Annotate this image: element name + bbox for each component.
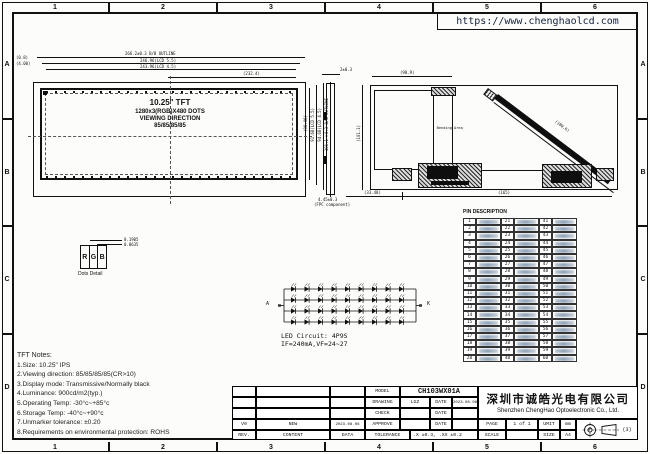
pin-name-smudge <box>552 340 577 347</box>
zone-label: A <box>638 12 648 120</box>
pin-number: 56 <box>539 326 552 333</box>
center-line-vertical <box>170 76 171 204</box>
zone-label: 3 <box>218 2 326 12</box>
pin-number: 4 <box>463 240 476 247</box>
pin-name-smudge <box>476 261 501 268</box>
connector-bar-left <box>431 181 469 185</box>
pin-number: 60 <box>539 355 552 362</box>
pin-name-smudge <box>552 283 577 290</box>
pin-name-smudge <box>476 355 501 362</box>
pin-name-smudge <box>514 333 539 340</box>
pin-name-smudge <box>552 333 577 340</box>
note-line: 1.Size: 10.25" IPS <box>17 361 235 371</box>
pin-number: 30 <box>501 283 514 290</box>
data-label-cell: DATA <box>330 430 365 440</box>
empty-cell <box>232 408 256 419</box>
dim-line <box>362 85 363 190</box>
pin-number: 46 <box>539 254 552 261</box>
tft-notes: TFT Notes: 1.Size: 10.25" IPS2.Viewing d… <box>17 351 235 437</box>
dim-line <box>46 69 296 70</box>
pin-name-smudge <box>476 225 501 232</box>
dim-line <box>372 76 452 77</box>
alignment-mark <box>43 91 47 95</box>
side-view-outline <box>326 83 335 195</box>
approve-date-label-cell: DATE <box>430 419 452 430</box>
pin-number: 29 <box>501 276 514 283</box>
pin-number: 55 <box>539 319 552 326</box>
dim-right3-label: 94.68(LCD 4.5) <box>318 108 322 142</box>
pin-name-smudge <box>476 283 501 290</box>
note-line: 7.Unmarker tolerance: ±0.20 <box>17 418 235 428</box>
scale-value-cell <box>506 430 538 440</box>
pin-number: 59 <box>539 347 552 354</box>
pin-name-smudge <box>552 297 577 304</box>
zone-label: 5 <box>434 2 542 12</box>
zone-strip-bottom: 123456 <box>2 442 648 452</box>
pin-number: 52 <box>539 297 552 304</box>
pin-number: 21 <box>501 218 514 225</box>
url-box: https://www.chenghaolcd.com <box>437 12 638 30</box>
pin-name-smudge <box>552 247 577 254</box>
pin-name-smudge <box>552 304 577 311</box>
pin-name-smudge <box>552 347 577 354</box>
pin-number: 54 <box>539 311 552 318</box>
empty-cell <box>256 386 330 397</box>
empty-cell <box>330 397 365 408</box>
pin-name-smudge <box>514 268 539 275</box>
led-caption-2: IF=240mA,VF=24~27 <box>281 340 348 348</box>
pin-name-smudge <box>476 319 501 326</box>
zone-label: 1 <box>2 2 110 12</box>
pin-number: 5 <box>463 247 476 254</box>
pin-number: 31 <box>501 290 514 297</box>
pin-name-smudge <box>476 254 501 261</box>
pin-name-smudge <box>552 326 577 333</box>
note-line: 6.Storage Temp: -40°c~+90°c <box>17 409 235 419</box>
pin-number: 58 <box>539 340 552 347</box>
pin-number: 8 <box>463 268 476 275</box>
pin-number: 34 <box>501 311 514 318</box>
zone-label: 6 <box>542 2 648 12</box>
pin-name-smudge <box>514 232 539 239</box>
rev-date-cell: 2023.08.06 <box>330 419 365 430</box>
zone-label: A <box>2 12 12 120</box>
dim-right2-label: 91.68(LCD 5.5) <box>311 108 315 142</box>
note-line: 2.Viewing direction: 85/85/85/85(CR>10) <box>17 370 235 380</box>
pin-name-smudge <box>514 283 539 290</box>
zone-label: 5 <box>434 442 542 452</box>
pin-name-smudge <box>514 254 539 261</box>
bending-area-label: Bending Area <box>437 126 463 130</box>
connector-black-right <box>551 171 582 183</box>
pin-number: 10 <box>463 283 476 290</box>
third-angle-projection-icon <box>582 422 620 438</box>
pin-number: 2 <box>463 225 476 232</box>
pin-number: 39 <box>501 347 514 354</box>
pin-name-smudge <box>552 319 577 326</box>
pin-number: 16 <box>463 326 476 333</box>
connector-black-left <box>427 166 458 179</box>
empty-cell <box>256 397 330 408</box>
pin-name-smudge <box>514 319 539 326</box>
zone-strip-top: 123456 <box>2 2 648 12</box>
dim-tick <box>402 192 403 200</box>
zone-label: B <box>2 120 12 228</box>
empty-cell <box>232 397 256 408</box>
pin-name-smudge <box>552 232 577 239</box>
dim-line <box>346 196 612 197</box>
pin-number: 14 <box>463 311 476 318</box>
drawing-date-value-cell: 2023.08.06 <box>452 397 478 408</box>
size-value-cell: A4 <box>560 430 576 440</box>
pin-number: 17 <box>463 333 476 340</box>
pin-name-smudge <box>552 240 577 247</box>
pin-number: 45 <box>539 247 552 254</box>
fpc-bond-block <box>431 87 456 96</box>
dot-dim2-label: 0.0635 <box>124 243 138 247</box>
drawing-date-label-cell: DATE <box>430 397 452 408</box>
pin-name-smudge <box>552 261 577 268</box>
pin-number: 48 <box>539 268 552 275</box>
pin-number: 36 <box>501 326 514 333</box>
pin-number: 37 <box>501 333 514 340</box>
back-left-dim-label: (101.1) <box>357 125 361 142</box>
pin-number: 9 <box>463 276 476 283</box>
back-top-dim-label: (98.9) <box>400 71 414 75</box>
pin-number: 18 <box>463 340 476 347</box>
side-fpc-note-label: (FPC component) <box>314 203 350 207</box>
pin-name-smudge <box>514 304 539 311</box>
tolerance-label-cell: TOLERANCE <box>365 430 410 440</box>
check-date-label-cell: DATE <box>430 408 452 419</box>
model-value-cell: CH103WX01A <box>400 386 478 397</box>
projection-cell: (3) <box>576 419 638 440</box>
note-line: 3.Display mode: Transmissive/Normally bl… <box>17 380 235 390</box>
drawing-sheet: 123456 123456 ABCD ABCD https://www.chen… <box>0 0 650 454</box>
dim-left2-label: (4.00) <box>16 62 30 66</box>
pin-name-smudge <box>514 355 539 362</box>
zone-label: 6 <box>542 442 648 452</box>
pin-number: 7 <box>463 261 476 268</box>
scale-label-cell: SCALE <box>478 430 506 440</box>
pin-name-smudge <box>476 311 501 318</box>
pin-number: 6 <box>463 254 476 261</box>
dot-callout-line <box>90 240 122 241</box>
pin-number: 20 <box>463 355 476 362</box>
empty-cell <box>330 408 365 419</box>
side-view-tab <box>324 156 327 164</box>
zone-label: 2 <box>110 2 218 12</box>
pin-name-smudge <box>552 311 577 318</box>
side-view-tab <box>324 112 327 120</box>
dim-lcd55-label: 246.96(LCD 5.5) <box>140 59 176 63</box>
note-line: 5.Operating Temp: -30°c~+85°c <box>17 399 235 409</box>
pin-name-smudge <box>514 347 539 354</box>
pin-name-smudge <box>514 326 539 333</box>
bend-strip-line <box>452 90 453 170</box>
unit-label-cell: UMIT <box>538 419 560 430</box>
pin-name-smudge <box>552 276 577 283</box>
company-cell: 深圳市诚皓光电有限公司 Shenzhen ChengHao Optoelectr… <box>478 386 638 419</box>
dim-232-label: (232.4) <box>243 72 260 76</box>
pin-name-smudge <box>552 290 577 297</box>
approve-date-value-cell <box>452 419 478 430</box>
pin-name-smudge <box>476 347 501 354</box>
dot-detail-caption: Dots Detail <box>78 272 102 277</box>
pin-number: 22 <box>501 225 514 232</box>
note-line: 4.Luminance: 900cd/m2(typ.) <box>17 389 235 399</box>
company-name-en: Shenzhen ChengHao Optoelectronic Co., Lt… <box>497 408 619 414</box>
page-label-cell: PAGE <box>478 419 506 430</box>
check-label-cell: CHECK <box>365 408 400 419</box>
content-value-cell: NEW <box>256 419 330 430</box>
pin-number: 13 <box>463 304 476 311</box>
pin-name-smudge <box>476 333 501 340</box>
pin-name-smudge <box>476 326 501 333</box>
pin-name-smudge <box>514 218 539 225</box>
pin-number: 33 <box>501 304 514 311</box>
pin-number: 50 <box>539 283 552 290</box>
company-name-cn: 深圳市诚皓光电有限公司 <box>487 391 630 407</box>
pin-name-smudge <box>552 355 577 362</box>
drawing-label-cell: DRAWING <box>365 397 400 408</box>
pin-number: 24 <box>501 240 514 247</box>
led-array-svg <box>278 282 422 330</box>
pin-number: 44 <box>539 240 552 247</box>
notes-title: TFT Notes: <box>17 351 235 361</box>
empty-cell <box>256 408 330 419</box>
unit-value-cell: mm <box>560 419 576 430</box>
pin-number: 25 <box>501 247 514 254</box>
pin-name-smudge <box>476 240 501 247</box>
pin-name-smudge <box>552 225 577 232</box>
pin-name-smudge <box>476 276 501 283</box>
projection-label: (3) <box>622 427 631 433</box>
pin-number: 35 <box>501 319 514 326</box>
pin-name-smudge <box>552 268 577 275</box>
led-dot-marks-top <box>46 91 292 93</box>
back-dim-b2-label: (165) <box>498 191 510 195</box>
pin-name-smudge <box>476 340 501 347</box>
zone-label: 1 <box>2 442 110 452</box>
pin-number: 51 <box>539 290 552 297</box>
tolerance-value-cell: .X ±0.3, .XX ±0.2 <box>410 430 478 440</box>
back-dim-b1-label: (33.48) <box>364 191 381 195</box>
connector-tab <box>596 168 614 181</box>
pin-name-smudge <box>476 218 501 225</box>
dim-right1-label: (90.96) <box>304 115 308 132</box>
zone-label: 4 <box>326 2 434 12</box>
pin-number: 41 <box>539 218 552 225</box>
pin-name-smudge <box>552 218 577 225</box>
pin-number: 47 <box>539 261 552 268</box>
pin-table: 1214122242323434244452545626467274782848… <box>463 218 577 362</box>
dim-outline-label: 266.2±0.3 B/B OUTLINE <box>125 52 176 56</box>
pin-name-smudge <box>476 268 501 275</box>
notes-lines: 1.Size: 10.25" IPS2.Viewing direction: 8… <box>17 361 235 438</box>
zone-label: C <box>638 227 648 335</box>
revision-empty-rows <box>232 386 365 419</box>
side-thickness-label: 2±0.3 <box>340 68 352 72</box>
pin-name-smudge <box>514 290 539 297</box>
zone-label: B <box>638 120 648 228</box>
pin-name-smudge <box>552 254 577 261</box>
pin-name-smudge <box>514 297 539 304</box>
dot-b: B <box>98 246 106 268</box>
pin-number: 11 <box>463 290 476 297</box>
panel-spec-text: 10.25" TFT 1280x3(RGB)X480 DOTS VIEWING … <box>95 98 245 129</box>
zone-label: 2 <box>110 442 218 452</box>
pin-name-smudge <box>476 304 501 311</box>
pin-number: 12 <box>463 297 476 304</box>
pin-number: 28 <box>501 268 514 275</box>
website-link[interactable]: https://www.chenghaolcd.com <box>456 16 619 27</box>
dot-r: R <box>81 246 90 268</box>
dot-callout-line <box>97 244 122 245</box>
content-label-cell: CONTENT <box>256 430 330 440</box>
pin-name-smudge <box>514 311 539 318</box>
zone-label: 3 <box>218 442 326 452</box>
pin-number: 27 <box>501 261 514 268</box>
pin-number: 49 <box>539 276 552 283</box>
zone-strip-right: ABCD <box>638 12 648 440</box>
pin-number: 38 <box>501 340 514 347</box>
pin-name-smudge <box>514 340 539 347</box>
empty-cell <box>330 386 365 397</box>
pin-number: 3 <box>463 232 476 239</box>
note-line: 8.Requirements on environmental protecti… <box>17 428 235 438</box>
page-value-cell: 1 of 1 <box>506 419 538 430</box>
zone-strip-left: ABCD <box>2 12 12 440</box>
pin-number: 32 <box>501 297 514 304</box>
pin-table-title: PIN DESCRIPTION <box>463 210 507 215</box>
led-anode-label: A <box>266 302 269 307</box>
pin-number: 42 <box>539 225 552 232</box>
approve-label-cell: APPROVE <box>365 419 400 430</box>
pin-number: 15 <box>463 319 476 326</box>
zone-label: D <box>2 335 12 441</box>
pin-name-smudge <box>514 240 539 247</box>
panel-size-text: 10.25" TFT <box>95 98 245 107</box>
pin-number: 19 <box>463 347 476 354</box>
center-line-horizontal <box>28 136 312 137</box>
drawing-value-cell: LGZ <box>400 397 430 408</box>
zone-label: D <box>638 335 648 441</box>
led-cathode-label: K <box>427 302 430 307</box>
pin-name-smudge <box>514 276 539 283</box>
pin-name-smudge <box>476 232 501 239</box>
empty-cell <box>232 386 256 397</box>
panel-viewing-text: VIEWING DIRECTION <box>95 116 245 122</box>
zone-label: C <box>2 227 12 335</box>
dim-left1-label: (0.8) <box>16 56 28 60</box>
approve-value-cell <box>400 419 430 430</box>
back-pcb-area <box>374 90 434 170</box>
pin-number: 53 <box>539 304 552 311</box>
pin-number: 1 <box>463 218 476 225</box>
check-value-cell <box>400 408 430 419</box>
pin-number: 43 <box>539 232 552 239</box>
size-label-cell: SIZE <box>538 430 560 440</box>
rev-label-cell: REV. <box>232 430 256 440</box>
pin-number: 23 <box>501 232 514 239</box>
pin-name-smudge <box>476 247 501 254</box>
pin-name-smudge <box>514 261 539 268</box>
connector-tab <box>392 168 412 181</box>
dot-detail-figure: R G B <box>80 245 107 269</box>
pin-name-smudge <box>476 290 501 297</box>
pin-name-smudge <box>514 247 539 254</box>
check-date-value-cell <box>452 408 478 419</box>
dim-line <box>168 77 296 78</box>
pin-number: 26 <box>501 254 514 261</box>
dim-lcd45-label: 243.96(LCD 4.5) <box>140 65 176 69</box>
led-dot-marks-bottom <box>46 176 292 178</box>
dot-g: G <box>90 246 99 268</box>
pin-number: 57 <box>539 333 552 340</box>
rev-value-cell: V0 <box>232 419 256 430</box>
panel-resolution-text: 1280x3(RGB)X480 DOTS <box>95 109 245 115</box>
panel-angles-text: 85/85/85/85 <box>95 123 245 129</box>
led-caption-1: LED Circuit: 4P9S <box>281 332 348 340</box>
dim-line <box>322 74 340 75</box>
pin-name-smudge <box>514 225 539 232</box>
model-label-cell: MODEL <box>365 386 400 397</box>
pin-name-smudge <box>476 297 501 304</box>
zone-label: 4 <box>326 442 434 452</box>
pin-number: 40 <box>501 355 514 362</box>
